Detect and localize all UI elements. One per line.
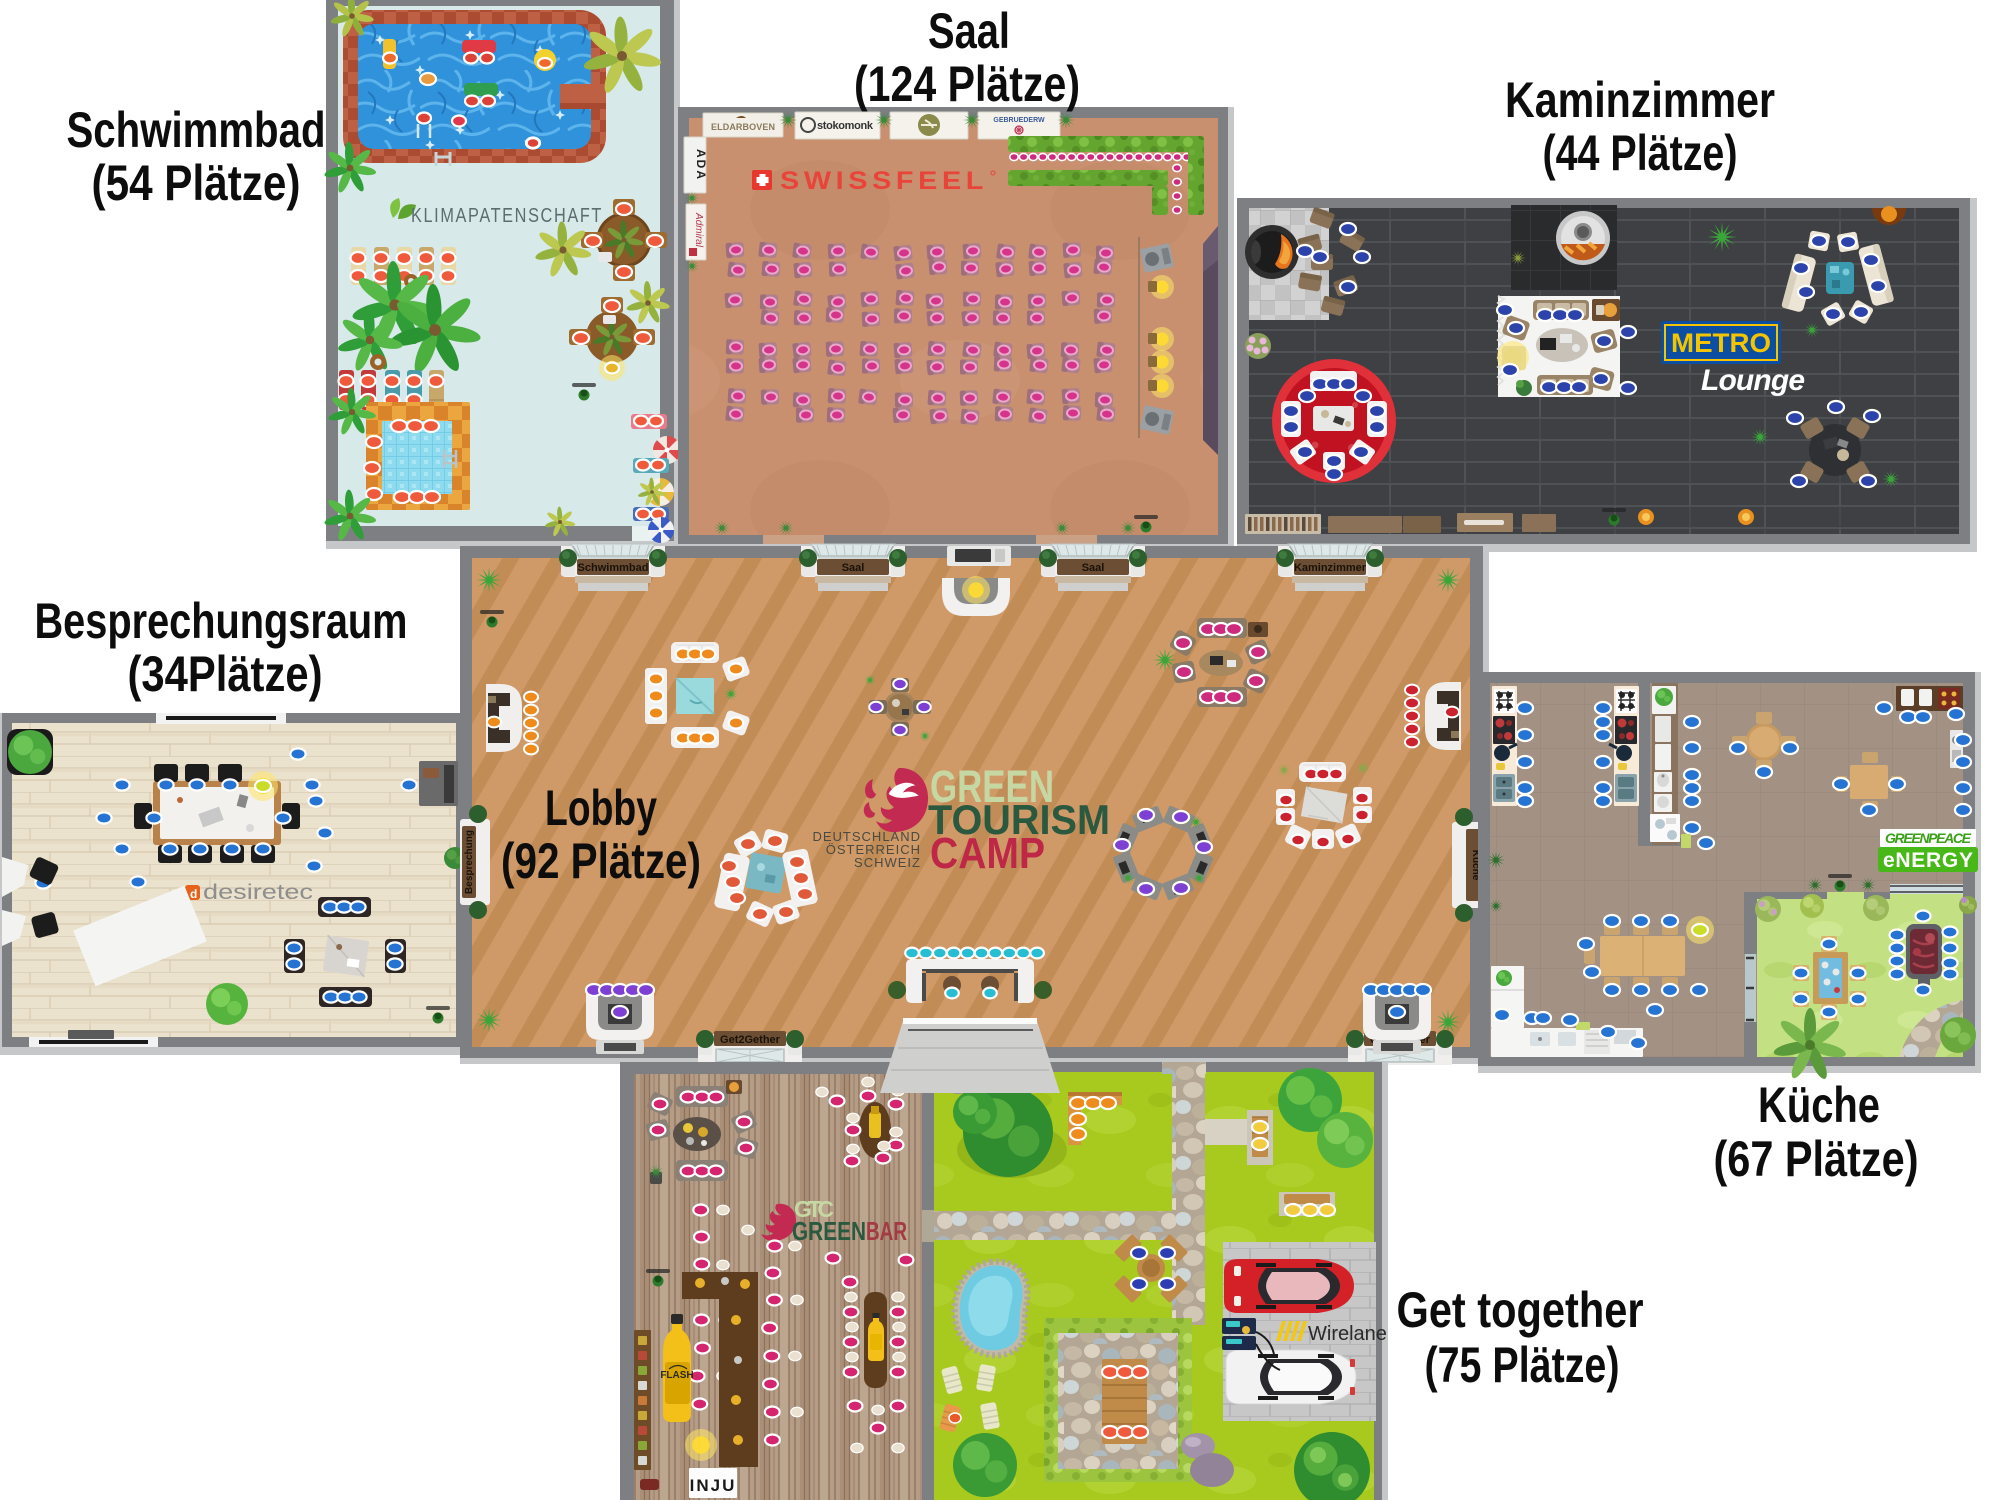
svg-text:Get2Gether: Get2Gether	[720, 1034, 781, 1046]
svg-text:GREENPEACE: GREENPEACE	[1885, 830, 1972, 846]
svg-text:(67 Plätze): (67 Plätze)	[1714, 1131, 1919, 1187]
svg-text:Get together: Get together	[1397, 1282, 1644, 1338]
svg-text:Kaminzimmer: Kaminzimmer	[1294, 562, 1367, 574]
svg-text:INJU: INJU	[690, 1476, 737, 1495]
svg-text:(92 Plätze): (92 Plätze)	[501, 833, 701, 889]
svg-text:FLASH: FLASH	[660, 1370, 693, 1381]
svg-text:(44 Plätze): (44 Plätze)	[1543, 125, 1738, 181]
svg-text:Küche: Küche	[1758, 1077, 1880, 1133]
svg-text:GEBRUEDERW: GEBRUEDERW	[993, 117, 1045, 124]
svg-text:SCHWEIZ: SCHWEIZ	[854, 855, 921, 870]
svg-text:Schwimmbad: Schwimmbad	[578, 562, 649, 574]
svg-text:d: d	[190, 887, 197, 901]
svg-text:GREEN: GREEN	[792, 1216, 866, 1246]
svg-text:SWISSFEEL: SWISSFEEL	[780, 167, 988, 195]
svg-text:Admiral: Admiral	[693, 212, 704, 248]
svg-text:(54 Plätze): (54 Plätze)	[92, 155, 301, 211]
svg-text:stokomonk: stokomonk	[817, 120, 874, 132]
svg-text:BAR: BAR	[866, 1216, 907, 1246]
svg-text:Besprechungsraum: Besprechungsraum	[35, 593, 408, 649]
svg-text:(124 Plätze): (124 Plätze)	[854, 56, 1080, 112]
svg-text:ELDARBOVEN: ELDARBOVEN	[711, 122, 775, 132]
svg-text:eNERGY: eNERGY	[1883, 849, 1973, 872]
svg-text:Besprechung: Besprechung	[464, 830, 475, 894]
svg-text:CAMP: CAMP	[930, 829, 1045, 878]
svg-text:Kaminzimmer: Kaminzimmer	[1505, 72, 1775, 128]
svg-text:desiretec: desiretec	[203, 881, 313, 904]
svg-text:Saal: Saal	[1082, 562, 1105, 574]
svg-text:Wirelane: Wirelane	[1308, 1323, 1387, 1345]
svg-text:KLIMAPATENSCHAFT: KLIMAPATENSCHAFT	[411, 205, 603, 227]
svg-text:Lobby: Lobby	[545, 780, 657, 836]
svg-text:Saal: Saal	[842, 562, 865, 574]
svg-text:Schwimmbad: Schwimmbad	[67, 102, 326, 158]
svg-text:(34Plätze): (34Plätze)	[128, 646, 323, 702]
svg-text:Saal: Saal	[928, 3, 1010, 59]
svg-text:ADA: ADA	[694, 149, 708, 181]
svg-text:(75 Plätze): (75 Plätze)	[1425, 1337, 1620, 1393]
svg-text:METRO: METRO	[1671, 328, 1771, 358]
svg-text:Lounge: Lounge	[1701, 364, 1805, 397]
